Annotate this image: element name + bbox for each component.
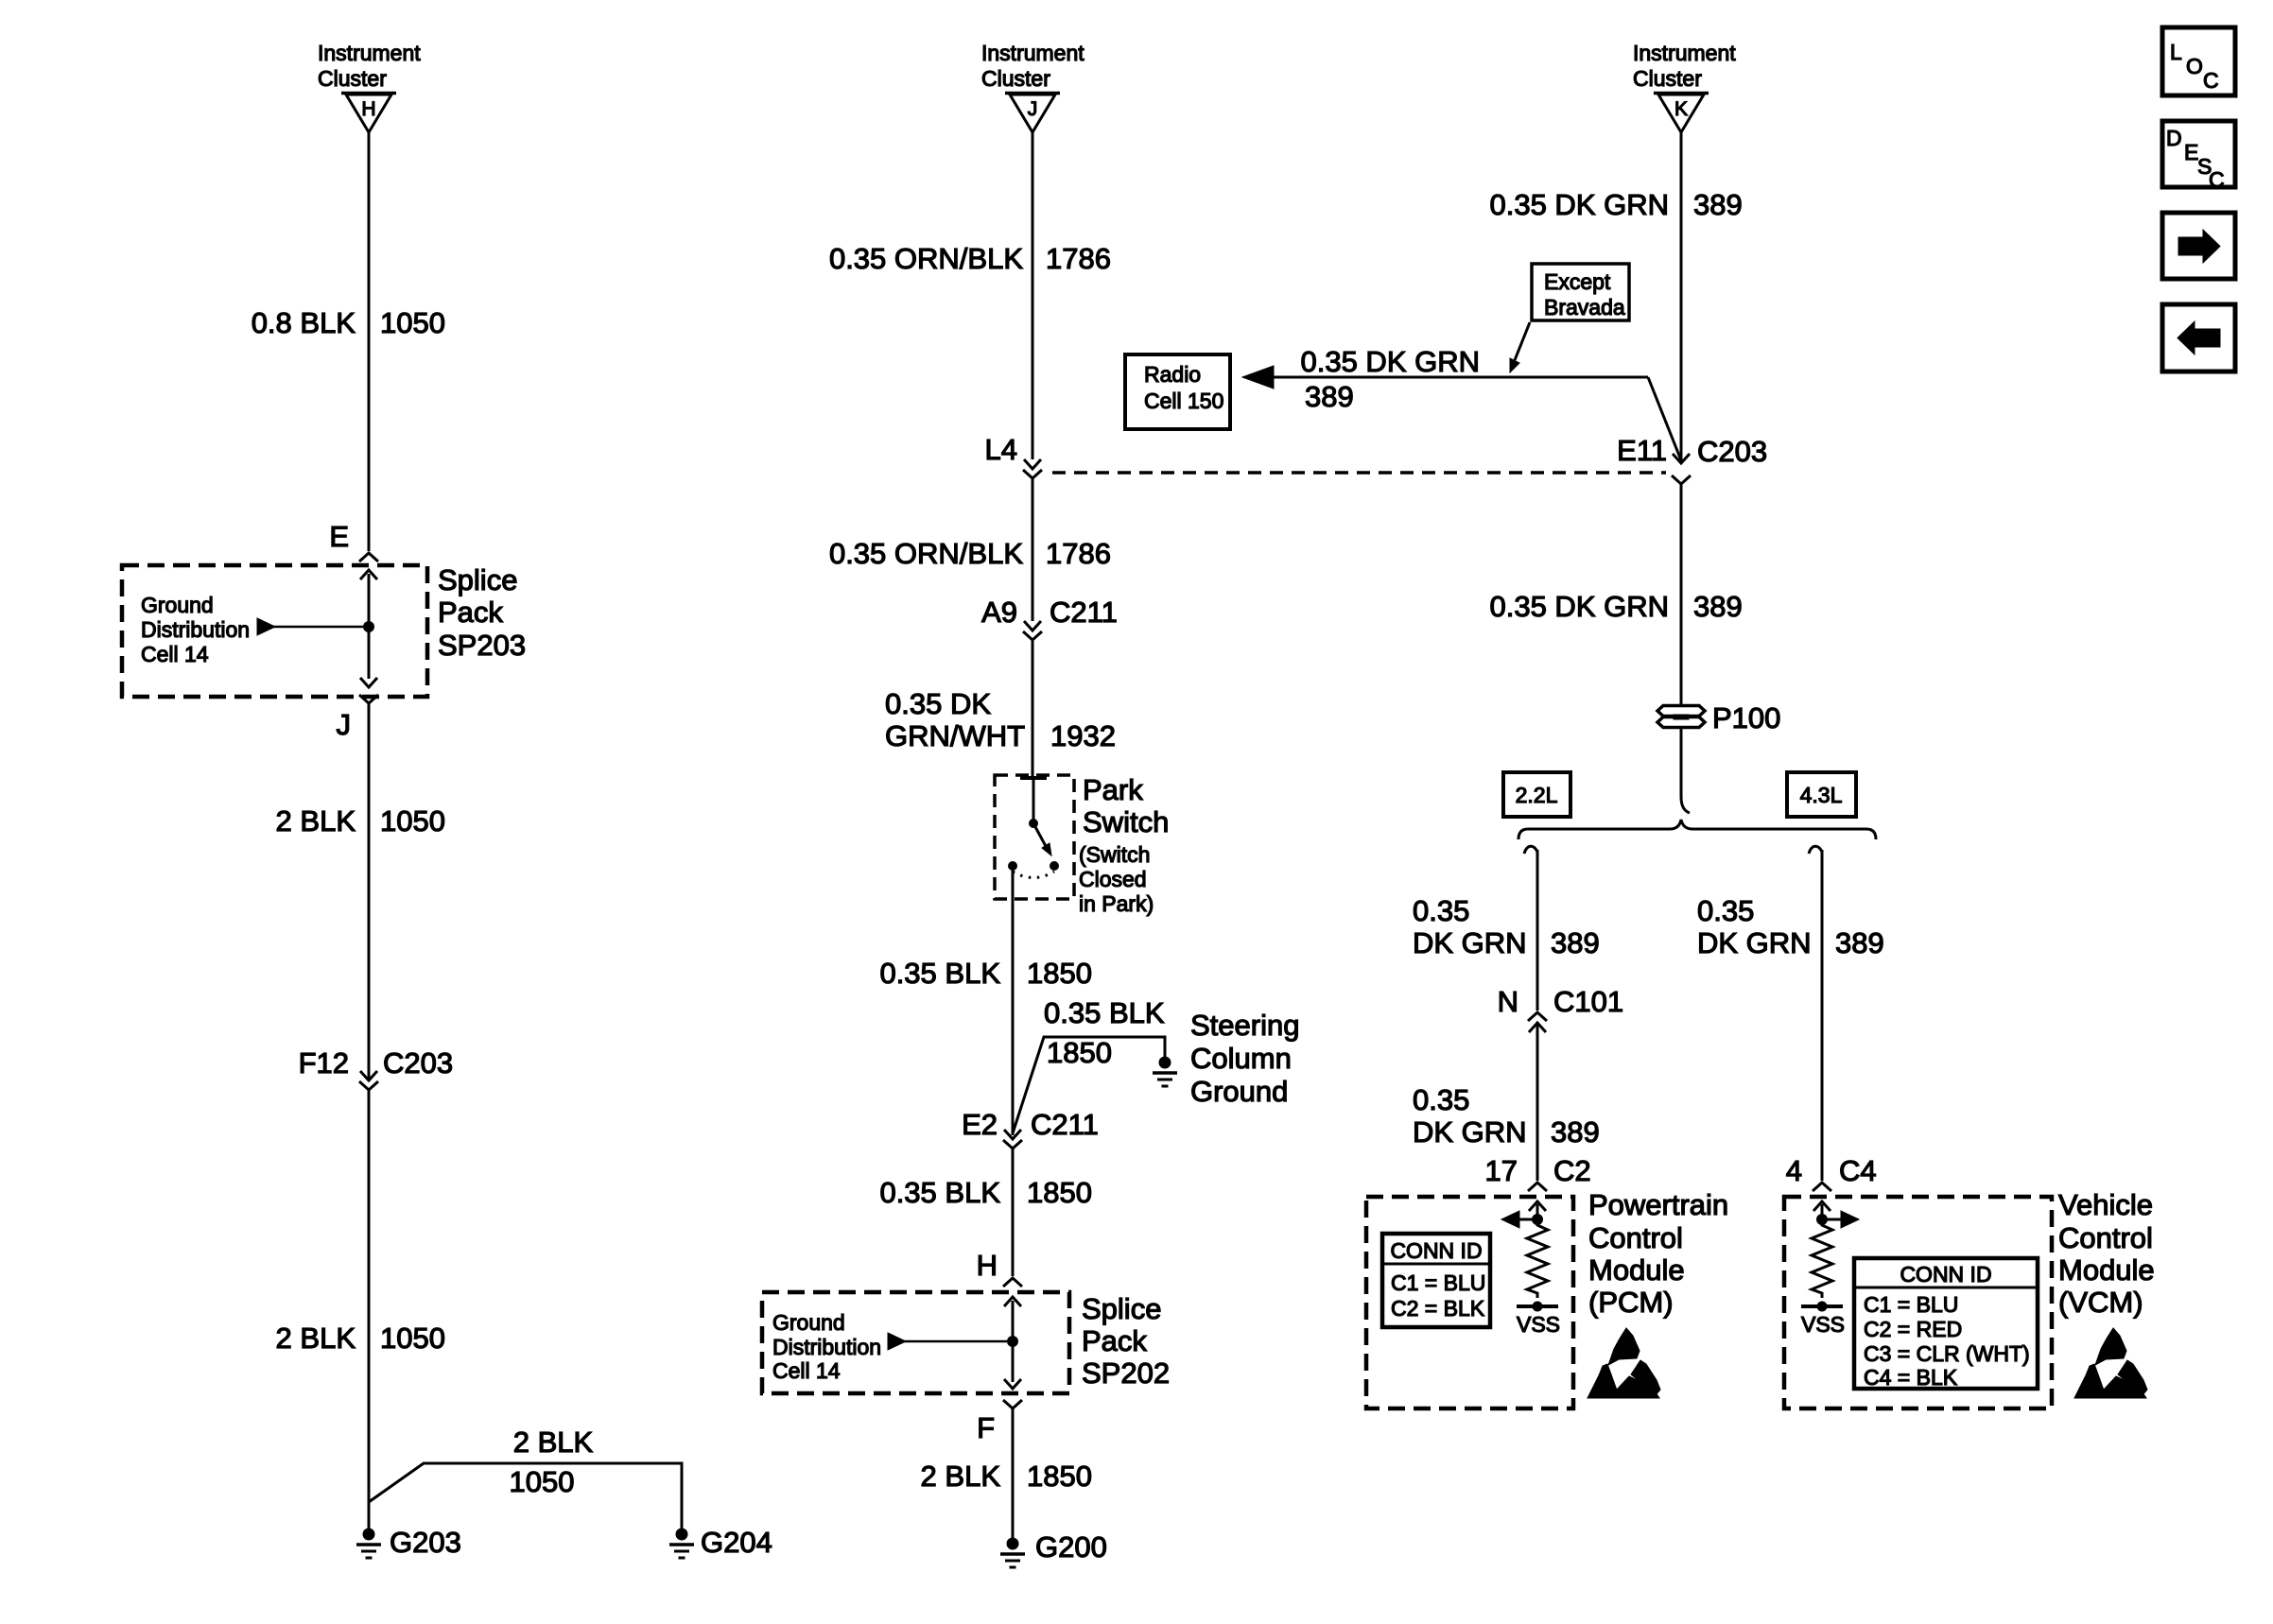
svg-text:E: E — [329, 520, 349, 553]
svg-text:Closed: Closed — [1079, 867, 1147, 891]
svg-text:Control: Control — [1588, 1221, 1683, 1254]
svg-text:0.35: 0.35 — [1413, 894, 1469, 927]
svg-text:C4: C4 — [1839, 1154, 1877, 1187]
svg-text:C101: C101 — [1553, 985, 1623, 1018]
svg-text:Cluster: Cluster — [981, 66, 1050, 91]
svg-text:1850: 1850 — [1027, 957, 1092, 990]
svg-text:Ground: Ground — [772, 1310, 845, 1335]
svg-text:C2: C2 — [1553, 1154, 1591, 1187]
svg-text:1786: 1786 — [1046, 537, 1111, 570]
svg-text:VSS: VSS — [1517, 1312, 1560, 1337]
svg-text:Instrument: Instrument — [981, 41, 1084, 65]
svg-text:Cluster: Cluster — [318, 66, 387, 91]
svg-text:Steering: Steering — [1190, 1009, 1299, 1042]
svg-text:0.35 DK GRN: 0.35 DK GRN — [1489, 188, 1669, 221]
svg-text:Switch: Switch — [1083, 805, 1169, 838]
svg-text:17: 17 — [1485, 1154, 1518, 1187]
svg-text:C: C — [2203, 68, 2219, 93]
svg-text:Cell 14: Cell 14 — [772, 1358, 841, 1383]
svg-text:1050: 1050 — [380, 306, 445, 339]
svg-text:4: 4 — [1786, 1154, 1802, 1187]
svg-text:2 BLK: 2 BLK — [921, 1460, 1001, 1493]
svg-text:C211: C211 — [1031, 1108, 1099, 1141]
svg-text:G203: G203 — [390, 1526, 461, 1559]
svg-text:Instrument: Instrument — [318, 41, 421, 65]
svg-text:Splice: Splice — [438, 563, 517, 596]
svg-text:VSS: VSS — [1801, 1312, 1845, 1337]
svg-text:C4 = BLK: C4 = BLK — [1864, 1365, 1958, 1390]
svg-text:1850: 1850 — [1027, 1460, 1092, 1493]
svg-text:1050: 1050 — [380, 804, 445, 838]
svg-text:DK GRN: DK GRN — [1697, 926, 1812, 959]
svg-text:Radio: Radio — [1144, 362, 1201, 387]
svg-text:Powertrain: Powertrain — [1588, 1188, 1728, 1221]
svg-text:in Park): in Park) — [1079, 891, 1154, 916]
svg-text:C2 = RED: C2 = RED — [1864, 1317, 1962, 1341]
svg-text:C: C — [2209, 167, 2225, 192]
svg-text:Pack: Pack — [1082, 1324, 1147, 1357]
svg-text:J: J — [337, 708, 352, 741]
svg-text:C1 = BLU: C1 = BLU — [1391, 1270, 1485, 1295]
svg-text:Pack: Pack — [438, 596, 503, 629]
svg-text:389: 389 — [1551, 1115, 1600, 1149]
svg-text:0.35: 0.35 — [1413, 1083, 1469, 1116]
svg-text:O: O — [2186, 54, 2203, 78]
svg-text:0.35 DK GRN: 0.35 DK GRN — [1300, 345, 1480, 378]
svg-text:(PCM): (PCM) — [1588, 1286, 1674, 1319]
svg-text:1050: 1050 — [510, 1465, 575, 1498]
svg-text:Distribution: Distribution — [141, 617, 250, 642]
svg-text:2 BLK: 2 BLK — [513, 1425, 594, 1459]
svg-text:Distribution: Distribution — [772, 1335, 881, 1359]
svg-text:0.8 BLK: 0.8 BLK — [252, 306, 356, 339]
svg-text:389: 389 — [1551, 926, 1600, 959]
svg-text:CONN ID: CONN ID — [1390, 1238, 1482, 1263]
svg-text:E11: E11 — [1617, 434, 1667, 467]
svg-text:0.35 ORN/BLK: 0.35 ORN/BLK — [829, 537, 1023, 570]
svg-text:SP203: SP203 — [438, 629, 526, 662]
svg-text:1050: 1050 — [380, 1322, 445, 1355]
svg-text:0.35 DK GRN: 0.35 DK GRN — [1489, 590, 1669, 623]
svg-text:0.35 BLK: 0.35 BLK — [879, 957, 1000, 990]
svg-text:Park: Park — [1083, 773, 1143, 806]
svg-text:C2 = BLK: C2 = BLK — [1391, 1296, 1485, 1321]
svg-text:C211: C211 — [1050, 596, 1118, 629]
svg-text:E2: E2 — [962, 1108, 998, 1141]
svg-text:P100: P100 — [1712, 701, 1780, 734]
svg-text:F: F — [977, 1411, 995, 1444]
svg-text:0.35 ORN/BLK: 0.35 ORN/BLK — [829, 242, 1023, 275]
svg-text:G204: G204 — [701, 1526, 772, 1559]
svg-text:DK GRN: DK GRN — [1413, 926, 1527, 959]
svg-text:1850: 1850 — [1047, 1036, 1112, 1069]
svg-text:Vehicle: Vehicle — [2058, 1188, 2153, 1221]
svg-text:C203: C203 — [1697, 435, 1767, 468]
svg-text:Splice: Splice — [1082, 1292, 1161, 1325]
svg-text:L: L — [2170, 40, 2182, 64]
svg-text:Module: Module — [2058, 1253, 2155, 1287]
svg-text:0.35 DK: 0.35 DK — [885, 687, 991, 720]
svg-text:389: 389 — [1305, 380, 1354, 413]
svg-text:2 BLK: 2 BLK — [276, 804, 356, 838]
svg-text:D: D — [2166, 126, 2182, 150]
svg-text:DK GRN: DK GRN — [1413, 1115, 1527, 1149]
svg-text:(Switch: (Switch — [1079, 842, 1150, 867]
svg-text:4.3L: 4.3L — [1800, 783, 1843, 807]
svg-text:CONN ID: CONN ID — [1900, 1262, 1991, 1287]
svg-text:K: K — [1674, 98, 1688, 120]
svg-text:Bravada: Bravada — [1544, 295, 1625, 320]
svg-text:Cluster: Cluster — [1633, 66, 1702, 91]
svg-text:Control: Control — [2058, 1221, 2153, 1254]
svg-text:Module: Module — [1588, 1253, 1685, 1287]
svg-text:N: N — [1498, 985, 1518, 1018]
svg-text:SP202: SP202 — [1082, 1356, 1170, 1390]
svg-text:1786: 1786 — [1046, 242, 1111, 275]
svg-text:GRN/WHT: GRN/WHT — [885, 719, 1025, 752]
svg-text:J: J — [1028, 98, 1038, 120]
svg-text:Ground: Ground — [1190, 1075, 1288, 1108]
svg-text:H: H — [977, 1249, 998, 1282]
svg-text:Cell 150: Cell 150 — [1144, 389, 1223, 413]
svg-text:2 BLK: 2 BLK — [276, 1322, 356, 1355]
svg-text:F12: F12 — [299, 1046, 349, 1080]
svg-text:1850: 1850 — [1027, 1176, 1092, 1209]
svg-text:389: 389 — [1693, 188, 1743, 221]
svg-text:A9: A9 — [981, 596, 1017, 629]
svg-text:2.2L: 2.2L — [1516, 783, 1558, 807]
svg-text:L4: L4 — [985, 433, 1017, 466]
svg-text:H: H — [361, 98, 375, 120]
svg-text:Ground: Ground — [141, 593, 214, 617]
svg-text:Cell 14: Cell 14 — [141, 642, 209, 666]
svg-text:Column: Column — [1190, 1042, 1292, 1075]
svg-text:0.35 BLK: 0.35 BLK — [879, 1176, 1000, 1209]
svg-text:Except: Except — [1544, 269, 1611, 294]
svg-text:C3 = CLR (WHT): C3 = CLR (WHT) — [1864, 1341, 2030, 1366]
svg-text:389: 389 — [1693, 590, 1743, 623]
svg-text:1932: 1932 — [1050, 719, 1116, 752]
svg-text:0.35: 0.35 — [1697, 894, 1754, 927]
svg-text:G200: G200 — [1035, 1530, 1107, 1564]
svg-text:389: 389 — [1835, 926, 1884, 959]
svg-text:C203: C203 — [383, 1046, 453, 1080]
svg-text:0.35 BLK: 0.35 BLK — [1044, 996, 1165, 1029]
svg-text:(VCM): (VCM) — [2058, 1286, 2143, 1319]
svg-text:C1 = BLU: C1 = BLU — [1864, 1292, 1958, 1317]
svg-text:Instrument: Instrument — [1633, 41, 1736, 65]
